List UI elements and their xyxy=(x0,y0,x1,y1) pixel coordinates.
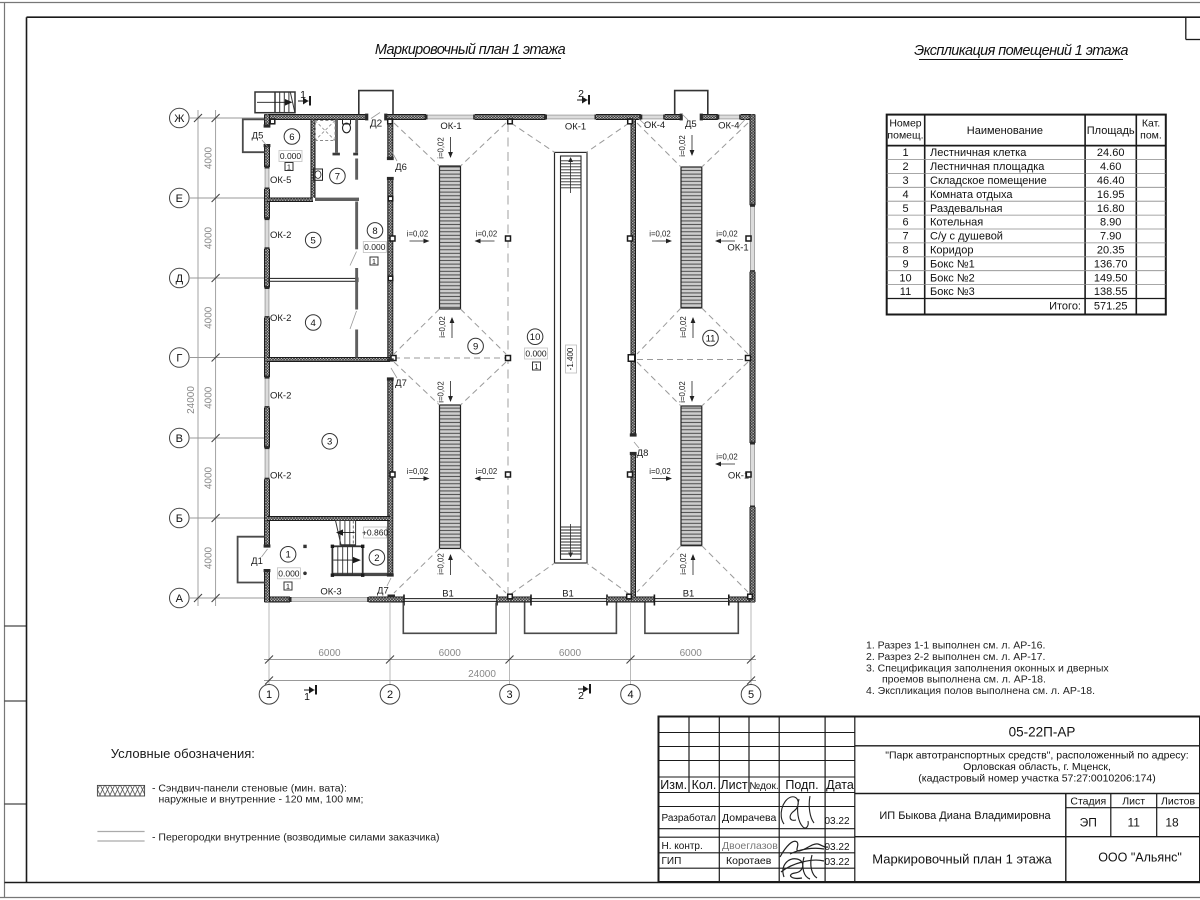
svg-text:1: 1 xyxy=(534,362,538,371)
svg-text:24.60: 24.60 xyxy=(1097,147,1125,159)
svg-text:2: 2 xyxy=(578,88,584,100)
svg-text:i=0,02: i=0,02 xyxy=(407,467,428,476)
svg-text:А: А xyxy=(176,593,184,605)
svg-text:03.22: 03.22 xyxy=(824,857,849,868)
svg-text:8: 8 xyxy=(372,226,377,237)
svg-text:6000: 6000 xyxy=(680,648,703,659)
svg-text:Д5: Д5 xyxy=(685,119,697,130)
svg-text:i=0,02: i=0,02 xyxy=(649,229,670,238)
svg-text:ОК-2: ОК-2 xyxy=(270,230,291,241)
svg-text:Коротаев: Коротаев xyxy=(726,855,772,867)
svg-text:5: 5 xyxy=(311,235,316,246)
svg-text:1: 1 xyxy=(304,691,310,703)
svg-text:помещ.: помещ. xyxy=(887,130,923,142)
svg-text:24000: 24000 xyxy=(186,386,197,414)
svg-text:2. Разрез 2-2 выполнен см. л.: 2. Разрез 2-2 выполнен см. л. АР-17. xyxy=(866,651,1045,663)
svg-text:i=0,02: i=0,02 xyxy=(679,316,688,337)
svg-text:Изм.: Изм. xyxy=(660,778,687,792)
svg-text:ОК-4: ОК-4 xyxy=(644,120,665,131)
svg-text:ОК-5: ОК-5 xyxy=(270,175,291,186)
svg-text:Маркировочный план 1 этажа: Маркировочный план 1 этажа xyxy=(872,852,1052,867)
svg-text:Д8: Д8 xyxy=(637,448,649,459)
svg-text:03.22: 03.22 xyxy=(824,816,849,827)
svg-text:i=0,02: i=0,02 xyxy=(678,135,687,156)
svg-text:i=0,02: i=0,02 xyxy=(437,553,446,574)
svg-text:136.70: 136.70 xyxy=(1094,258,1128,270)
svg-text:4000: 4000 xyxy=(204,386,215,409)
svg-text:Листов: Листов xyxy=(1161,796,1196,808)
svg-text:Кат.: Кат. xyxy=(1142,118,1160,130)
svg-text:Д: Д xyxy=(176,273,184,285)
svg-text:ОК-1: ОК-1 xyxy=(440,121,461,132)
svg-text:+0.860: +0.860 xyxy=(362,528,389,538)
svg-text:i=0,02: i=0,02 xyxy=(679,553,688,574)
svg-text:-1.400: -1.400 xyxy=(566,347,575,370)
svg-text:Н. контр.: Н. контр. xyxy=(662,841,703,852)
svg-text:i=0,02: i=0,02 xyxy=(437,381,446,402)
svg-text:Разработал: Разработал xyxy=(662,812,717,824)
svg-text:(кадастровый номер участка 57:: (кадастровый номер участка 57:27:0010206… xyxy=(918,773,1155,785)
svg-text:11: 11 xyxy=(706,334,716,345)
svg-text:0.000: 0.000 xyxy=(364,242,386,252)
svg-text:4. Экспликация полов выполнена: 4. Экспликация полов выполнена см. л. АР… xyxy=(866,685,1095,697)
svg-text:571.25: 571.25 xyxy=(1094,301,1128,313)
svg-text:Стадия: Стадия xyxy=(1070,796,1106,808)
svg-text:Подп.: Подп. xyxy=(785,778,818,792)
svg-text:10: 10 xyxy=(530,332,541,343)
svg-text:i=0,02: i=0,02 xyxy=(649,467,670,476)
svg-text:Раздевальная: Раздевальная xyxy=(930,203,1002,215)
svg-text:i=0,02: i=0,02 xyxy=(437,137,446,158)
svg-text:4000: 4000 xyxy=(204,546,215,569)
svg-text:1: 1 xyxy=(286,582,290,591)
svg-text:В1: В1 xyxy=(683,589,695,600)
svg-text:Д7: Д7 xyxy=(395,378,407,389)
svg-text:ИП Быкова Диана Владимировна: ИП Быкова Диана Владимировна xyxy=(879,810,1051,822)
svg-text:9: 9 xyxy=(473,342,478,353)
svg-text:Ж: Ж xyxy=(174,113,184,125)
svg-text:05-22П-АР: 05-22П-АР xyxy=(1009,725,1076,740)
svg-text:"Парк автотранспортных средств: "Парк автотранспортных средств", располо… xyxy=(885,750,1188,762)
svg-text:1: 1 xyxy=(266,689,272,701)
svg-text:7.90: 7.90 xyxy=(1100,231,1121,243)
svg-text:i=0,02: i=0,02 xyxy=(476,229,497,238)
svg-text:Итого:: Итого: xyxy=(1049,301,1081,313)
svg-text:4000: 4000 xyxy=(204,226,215,249)
svg-text:1. Разрез 1-1 выполнен см. л.: 1. Разрез 1-1 выполнен см. л. АР-16. xyxy=(866,640,1045,652)
svg-text:18: 18 xyxy=(1165,816,1179,830)
svg-text:Площадь: Площадь xyxy=(1087,125,1135,137)
svg-text:8.90: 8.90 xyxy=(1100,217,1121,229)
svg-text:1: 1 xyxy=(300,89,306,101)
svg-text:ОК-1: ОК-1 xyxy=(728,471,749,482)
svg-text:Комната отдыха: Комната отдыха xyxy=(930,189,1013,201)
svg-text:Д2: Д2 xyxy=(370,119,383,130)
svg-text:Лестничная клетка: Лестничная клетка xyxy=(930,147,1027,159)
svg-text:- Перегородки внутренние (возв: - Перегородки внутренние (возводимые сил… xyxy=(152,832,440,844)
svg-text:0.000: 0.000 xyxy=(278,568,300,578)
svg-text:Бокс №1: Бокс №1 xyxy=(930,258,975,270)
svg-text:ЭП: ЭП xyxy=(1080,816,1097,830)
svg-text:20.35: 20.35 xyxy=(1097,244,1125,256)
svg-text:i=0,02: i=0,02 xyxy=(716,229,737,238)
svg-text:ОК-1: ОК-1 xyxy=(727,243,748,254)
svg-text:Бокс №3: Бокс №3 xyxy=(930,286,975,298)
svg-text:6: 6 xyxy=(289,132,294,143)
svg-text:46.40: 46.40 xyxy=(1097,175,1125,187)
svg-text:5: 5 xyxy=(748,689,754,701)
svg-text:0.000: 0.000 xyxy=(525,349,547,359)
svg-text:16.95: 16.95 xyxy=(1097,189,1125,201)
svg-text:проемов выполнена см. л. АР-18: проемов выполнена см. л. АР-18. xyxy=(882,674,1046,686)
svg-text:3: 3 xyxy=(902,175,908,187)
svg-text:В1: В1 xyxy=(562,589,574,600)
svg-text:4: 4 xyxy=(311,318,316,329)
svg-text:4000: 4000 xyxy=(204,146,215,169)
svg-text:4: 4 xyxy=(627,689,633,701)
svg-text:1: 1 xyxy=(372,257,376,266)
svg-text:i=0,02: i=0,02 xyxy=(438,316,447,337)
svg-text:Г: Г xyxy=(176,353,182,365)
svg-text:№док.: №док. xyxy=(749,781,778,792)
svg-text:Дата: Дата xyxy=(826,778,854,792)
svg-text:ОК-1: ОК-1 xyxy=(565,122,586,133)
svg-text:Б: Б xyxy=(176,513,183,525)
svg-text:138.55: 138.55 xyxy=(1094,286,1128,298)
svg-text:6000: 6000 xyxy=(318,648,341,659)
svg-text:3. Спецификация заполнения око: 3. Спецификация заполнения оконных и две… xyxy=(866,662,1109,674)
svg-text:Лист: Лист xyxy=(1122,796,1145,808)
svg-text:Орловская область, г. Мценск,: Орловская область, г. Мценск, xyxy=(963,761,1111,773)
svg-text:Условные обозначения:: Условные обозначения: xyxy=(111,746,255,761)
svg-text:Котельная: Котельная xyxy=(930,217,983,229)
svg-text:В: В xyxy=(176,433,183,445)
svg-text:4.60: 4.60 xyxy=(1100,161,1121,173)
svg-text:11: 11 xyxy=(900,286,911,298)
svg-text:ОК-4: ОК-4 xyxy=(718,121,739,132)
svg-text:Наименование: Наименование xyxy=(967,125,1043,137)
svg-text:5: 5 xyxy=(902,203,908,215)
svg-text:ГИП: ГИП xyxy=(662,856,682,867)
svg-text:Кол.: Кол. xyxy=(692,778,717,792)
svg-text:6: 6 xyxy=(902,217,908,229)
svg-text:Маркировочный план 1 этажа: Маркировочный план 1 этажа xyxy=(375,42,566,58)
svg-text:Домрачева: Домрачева xyxy=(722,812,777,824)
svg-text:6000: 6000 xyxy=(439,648,462,659)
svg-text:1: 1 xyxy=(285,550,290,561)
svg-text:Д7: Д7 xyxy=(377,586,389,597)
svg-text:2: 2 xyxy=(387,689,393,701)
svg-text:i=0,02: i=0,02 xyxy=(678,381,687,402)
svg-text:16.80: 16.80 xyxy=(1097,203,1125,215)
svg-text:2: 2 xyxy=(902,161,908,173)
svg-text:3: 3 xyxy=(327,437,332,448)
svg-text:4000: 4000 xyxy=(204,466,215,489)
svg-text:9: 9 xyxy=(902,258,908,270)
svg-text:3: 3 xyxy=(506,689,512,701)
svg-text:ОК-2: ОК-2 xyxy=(270,313,291,324)
svg-text:Номер: Номер xyxy=(889,118,921,130)
svg-text:Бокс №2: Бокс №2 xyxy=(930,272,975,284)
svg-text:i=0,02: i=0,02 xyxy=(407,229,428,238)
svg-text:7: 7 xyxy=(902,231,908,243)
svg-text:ОК-2: ОК-2 xyxy=(270,391,291,402)
svg-text:Д6: Д6 xyxy=(395,162,407,173)
svg-text:i=0,02: i=0,02 xyxy=(476,467,497,476)
svg-text:Экспликация помещений 1 этажа: Экспликация помещений 1 этажа xyxy=(914,43,1128,59)
svg-text:2: 2 xyxy=(374,553,379,564)
svg-text:4: 4 xyxy=(902,189,908,201)
svg-text:пом.: пом. xyxy=(1140,130,1162,142)
svg-text:0.000: 0.000 xyxy=(280,151,302,161)
svg-text:Д5: Д5 xyxy=(252,131,264,142)
svg-text:ООО "Альянс": ООО "Альянс" xyxy=(1098,851,1182,865)
svg-text:Коридор: Коридор xyxy=(930,244,973,256)
svg-text:Складское помещение: Складское помещение xyxy=(930,175,1047,187)
svg-text:Е: Е xyxy=(176,193,183,205)
svg-text:Лист: Лист xyxy=(720,778,747,792)
svg-text:В1: В1 xyxy=(442,589,454,600)
svg-text:Д1: Д1 xyxy=(251,556,263,567)
svg-text:Лестничная площадка: Лестничная площадка xyxy=(930,161,1045,173)
svg-text:2: 2 xyxy=(578,690,584,702)
svg-text:24000: 24000 xyxy=(468,669,496,680)
svg-text:ОК-3: ОК-3 xyxy=(320,587,341,598)
svg-text:6000: 6000 xyxy=(559,648,582,659)
svg-text:03.22: 03.22 xyxy=(824,842,849,853)
svg-text:7: 7 xyxy=(335,171,340,182)
svg-text:1: 1 xyxy=(902,147,908,159)
svg-text:10: 10 xyxy=(899,272,911,284)
svg-text:149.50: 149.50 xyxy=(1094,272,1128,284)
svg-text:4000: 4000 xyxy=(204,306,215,329)
svg-text:1: 1 xyxy=(287,162,291,171)
svg-text:i=0,02: i=0,02 xyxy=(716,452,737,461)
svg-text:С/у с душевой: С/у с душевой xyxy=(930,231,1003,243)
svg-text:8: 8 xyxy=(902,244,908,256)
svg-text:наружные и внутренние - 120 мм: наружные и внутренние - 120 мм, 100 мм; xyxy=(159,794,364,806)
svg-text:11: 11 xyxy=(1127,816,1140,830)
svg-text:Двоеглазов: Двоеглазов xyxy=(722,840,778,852)
svg-text:ОК-2: ОК-2 xyxy=(270,471,291,482)
